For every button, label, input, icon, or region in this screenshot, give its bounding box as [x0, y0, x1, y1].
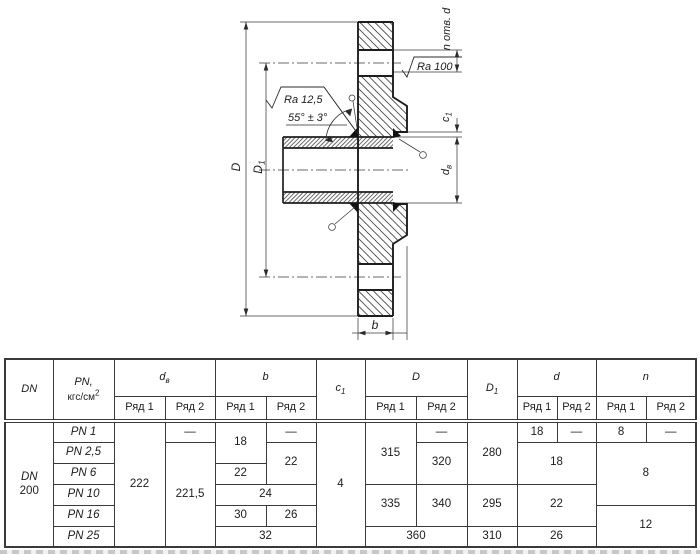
- cell-D-ryad1-pn10: 335: [365, 484, 416, 526]
- dim-D1-label: D1: [251, 160, 267, 174]
- subheader-dv-ryad2: Ряд 2: [165, 396, 215, 421]
- cell-b-ryad1-pn1: 18: [215, 421, 266, 463]
- subheader-d-ryad1: Ряд 1: [517, 396, 557, 421]
- pn-symbol: PN,: [74, 376, 92, 388]
- col-header-pn: PN, кгс/см2: [53, 359, 114, 421]
- angle-label: 55° ± 3°: [288, 112, 328, 124]
- ra-100-label: Ra 100: [417, 61, 453, 73]
- table-header: DN PN, кгс/см2 dв b c1 D D1 d n Ряд 1 Ря…: [5, 359, 696, 421]
- subheader-d-ryad2: Ряд 2: [557, 396, 596, 421]
- cell-b-ryad2-pn2-5: 22: [266, 442, 316, 484]
- cell-b-ryad1-pn16: 30: [215, 505, 266, 526]
- cell-pn-16: PN 16: [53, 505, 114, 526]
- ra-12-5-label: Ra 12,5: [284, 94, 323, 106]
- cell-dv-ryad1: 222: [114, 421, 165, 547]
- cell-D1-pn25: 310: [467, 526, 517, 547]
- cell-b-ryad1-pn6: 22: [215, 463, 266, 484]
- subheader-D-ryad1: Ряд 1: [365, 396, 416, 421]
- cell-dv-ryad2: 221,5: [165, 442, 215, 547]
- col-header-dv: dв: [114, 359, 215, 396]
- cell-D-ryad2-pn1: —: [416, 421, 467, 442]
- cell-d-ryad2-pn1: —: [557, 421, 596, 442]
- subheader-D-ryad2: Ряд 2: [416, 396, 467, 421]
- col-header-d: d: [517, 359, 596, 396]
- cell-n-ryad1-pn1: 8: [596, 421, 646, 442]
- table-row-pn1: DN 200 PN 1 222 — 18 — 4 315 — 280 18 — …: [5, 421, 696, 442]
- cell-D-ryad2-pn2-5: 320: [416, 442, 467, 484]
- cell-pn-6: PN 6: [53, 463, 114, 484]
- subheader-b-ryad2: Ряд 2: [266, 396, 316, 421]
- table-body: DN 200 PN 1 222 — 18 — 4 315 — 280 18 — …: [5, 421, 696, 547]
- cell-D1-pn1: 280: [467, 421, 517, 484]
- dim-c1-label: c1: [440, 112, 454, 122]
- cell-n-pn16-25: 12: [596, 505, 696, 547]
- subheader-dv-ryad1: Ряд 1: [114, 396, 165, 421]
- col-header-D1: D1: [467, 359, 517, 421]
- header-row-1: DN PN, кгс/см2 dв b c1 D D1 d n: [5, 359, 696, 396]
- flange-outline: [358, 22, 407, 316]
- flange-drawing: Ra 12,5 Ra 100 55° ± 3° n отв. d D D1 c1…: [0, 0, 700, 358]
- cell-D-pn25: 360: [365, 526, 467, 547]
- cell-d-ryad1-pn1: 18: [517, 421, 557, 442]
- cell-n-ryad2-pn1: —: [646, 421, 696, 442]
- dim-dv-label: dв: [440, 165, 454, 175]
- cell-d-pn10-16: 22: [517, 484, 596, 526]
- cell-d-pn25: 26: [517, 526, 596, 547]
- cell-pn-10: PN 10: [53, 484, 114, 505]
- cell-b-pn25: 32: [215, 526, 316, 547]
- cell-b-ryad2-pn16: 26: [266, 505, 316, 526]
- page-edge-artifact: [0, 550, 700, 554]
- subheader-n-ryad1: Ряд 1: [596, 396, 646, 421]
- cell-pn-25: PN 25: [53, 526, 114, 547]
- col-header-dn: DN: [5, 359, 53, 421]
- col-header-b: b: [215, 359, 316, 396]
- pn-unit: кгс/см2: [68, 392, 100, 403]
- dim-b-label: b: [372, 318, 379, 332]
- cell-pn-1: PN 1: [53, 421, 114, 442]
- cell-dn: DN 200: [5, 421, 53, 547]
- cell-D-ryad1-pn1: 315: [365, 421, 416, 484]
- flange-dimension-table: DN PN, кгс/см2 dв b c1 D D1 d n Ряд 1 Ря…: [4, 358, 697, 548]
- subheader-b-ryad1: Ряд 1: [215, 396, 266, 421]
- subheader-n-ryad2: Ряд 2: [646, 396, 696, 421]
- cell-dv-ryad2-pn1: —: [165, 421, 215, 442]
- page: Ra 12,5 Ra 100 55° ± 3° n отв. d D D1 c1…: [0, 0, 700, 555]
- cell-b-ryad2-pn1: —: [266, 421, 316, 442]
- cell-n-pn2-5-10: 8: [596, 442, 696, 505]
- col-header-c1: c1: [316, 359, 365, 421]
- cell-b-pn10: 24: [215, 484, 316, 505]
- col-header-n: n: [596, 359, 696, 396]
- cell-D1-pn10: 295: [467, 484, 517, 526]
- cell-c1: 4: [316, 421, 365, 547]
- dim-D-label: D: [229, 162, 243, 171]
- flange-hatching: [358, 22, 407, 316]
- cell-d-pn2-5-6: 18: [517, 442, 596, 484]
- col-header-D: D: [365, 359, 467, 396]
- cell-pn-2-5: PN 2,5: [53, 442, 114, 463]
- cell-D-ryad2-pn10: 340: [416, 484, 467, 526]
- n-holes-label: n отв. d: [441, 7, 453, 50]
